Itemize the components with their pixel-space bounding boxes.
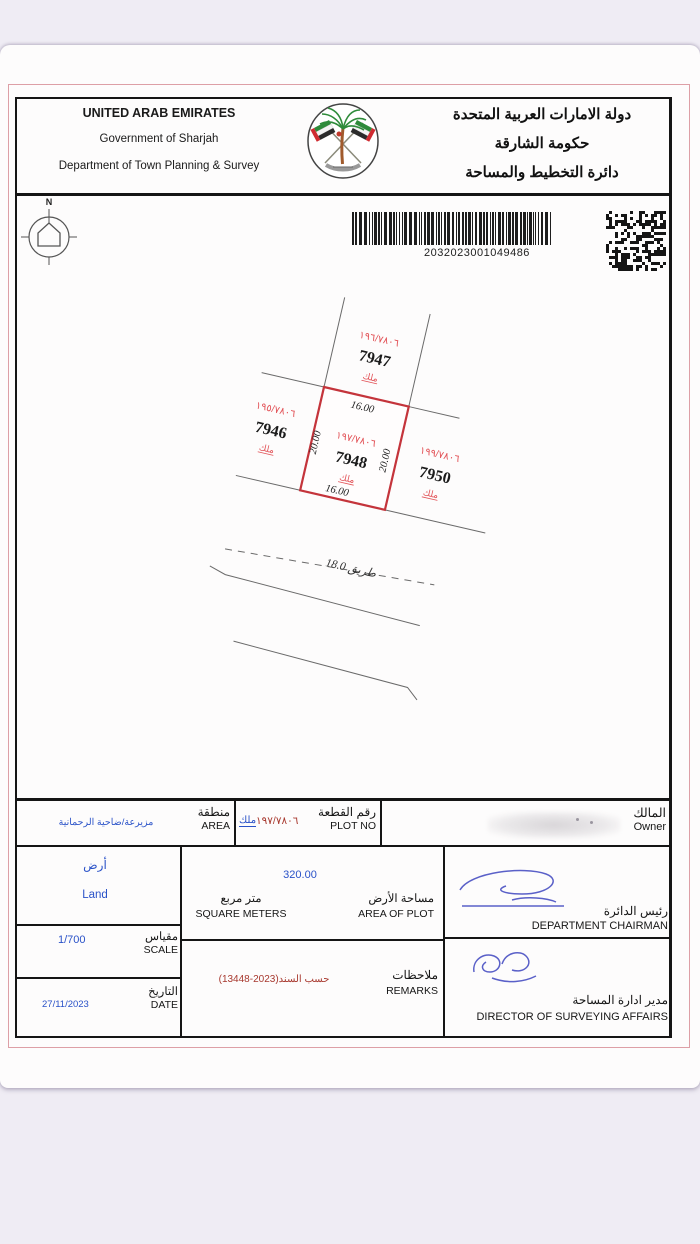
director-signature [466, 946, 552, 990]
title-country-en: UNITED ARAB EMIRATES [28, 106, 290, 120]
land-type-en: Land [40, 889, 150, 901]
square-meters-ar: متر مربع [186, 891, 296, 905]
remarks-label-en: REMARKS [358, 985, 438, 997]
director-label: مدير ادارة المساحة DIRECTOR OF SURVEYING… [440, 993, 668, 1023]
remarks-label-ar: ملاحظات [358, 968, 438, 982]
date-value: 27/11/2023 [42, 999, 89, 1010]
table-hline [15, 924, 180, 926]
plot-7950-tenure: ملك [422, 487, 439, 500]
table-top-border [15, 798, 670, 801]
datamatrix-code-icon [606, 211, 666, 271]
director-label-en: DIRECTOR OF SURVEYING AFFAIRS [440, 1011, 668, 1023]
plot-7947-tenure: ملك [362, 371, 379, 384]
barcode-block: 2032023001049486 [352, 212, 602, 259]
title-government-ar: حكومة الشارقة [418, 129, 666, 158]
barcode-icon [352, 212, 602, 245]
owner-dot [576, 818, 579, 821]
plot-7946-number: 7946 [253, 419, 288, 443]
chairman-label-en: DEPARTMENT CHAIRMAN [480, 920, 668, 932]
document-page: UNITED ARAB EMIRATES Government of Sharj… [0, 0, 700, 1244]
plot-7950-fraction: ١٩٩/٧٨٠٦ [419, 445, 461, 465]
owner-dot [590, 821, 593, 824]
area-value: مزيرعة/ضاحية الرحمانية [32, 817, 180, 828]
boundary-line [409, 314, 430, 407]
road-label: طريق 18.0 [324, 557, 377, 580]
table-hline [443, 937, 670, 939]
site-plan-drawing: 16.00 16.00 20.00 20.00 ١٩٦/٧٨٠٦ 7947 مل… [15, 288, 667, 800]
area-of-plot-value: 320.00 [255, 869, 345, 881]
area-of-plot-label-en: AREA OF PLOT [308, 908, 434, 920]
area-of-plot-label-ar: مساحة الأرض [308, 891, 434, 905]
sharjah-emblem-icon [305, 101, 381, 183]
north-compass-icon: N [16, 194, 82, 270]
owner-name-redacted [488, 812, 620, 838]
compass-north-label: N [46, 197, 53, 207]
plot-no-label-en: PLOT NO [288, 820, 376, 832]
chairman-label: رئيس الدائرة DEPARTMENT CHAIRMAN [480, 904, 668, 932]
table-hline [180, 939, 443, 941]
plot-no-label-ar: رقم القطعة [288, 805, 376, 819]
table-vline [380, 798, 382, 845]
plot-7950-number: 7950 [417, 464, 452, 488]
plot-7946-fraction: ١٩٥/٧٨٠٦ [255, 400, 297, 420]
chairman-label-ar: رئيس الدائرة [480, 904, 668, 918]
boundary-line [385, 510, 485, 533]
table-vline [180, 845, 182, 1036]
date-label: التاريخ DATE [98, 984, 178, 1011]
header-divider [15, 193, 670, 196]
boundary-line [409, 407, 460, 419]
boundary-line [324, 297, 345, 387]
plot-7947-fraction: ١٩٦/٧٨٠٦ [358, 330, 400, 350]
square-meters-label: متر مربع SQUARE METERS [186, 891, 296, 920]
header-arabic: دولة الامارات العربية المتحدة حكومة الشا… [418, 100, 666, 187]
remarks-label: ملاحظات REMARKS [358, 968, 438, 997]
scale-label-ar: مقياس [98, 929, 178, 943]
title-government-en: Government of Sharjah [28, 133, 290, 145]
plot-7946-tenure: ملك [258, 442, 275, 455]
title-department-ar: دائرة التخطيط والمساحة [418, 158, 666, 187]
scale-label: مقياس SCALE [98, 929, 178, 956]
plot-no-tenure: ملك [239, 815, 256, 827]
land-type-ar: أرض [40, 858, 150, 872]
boundary-line [262, 373, 324, 387]
plot-no-value: ١٩٧/٧٨٠٦ [256, 815, 298, 827]
boundary-line [236, 475, 300, 490]
title-department-en: Department of Town Planning & Survey [28, 160, 290, 172]
square-meters-en: SQUARE METERS [186, 908, 296, 920]
title-country-ar: دولة الامارات العربية المتحدة [418, 100, 666, 129]
scale-value: 1/700 [58, 934, 86, 946]
barcode-number: 2032023001049486 [352, 247, 602, 259]
land-type-cell: أرض Land [40, 858, 150, 901]
date-label-en: DATE [98, 999, 178, 1011]
road-edge-line [207, 566, 422, 626]
remarks-value: حسب السند(2023-13448) [198, 974, 350, 985]
plot-no-label: رقم القطعة PLOT NO [288, 805, 376, 832]
far-boundary-line [230, 641, 421, 700]
plot-7947-number: 7947 [357, 347, 392, 371]
header-english: UNITED ARAB EMIRATES Government of Sharj… [28, 106, 290, 172]
scale-label-en: SCALE [98, 944, 178, 956]
table-vline [234, 798, 236, 845]
area-of-plot-label: مساحة الأرض AREA OF PLOT [308, 891, 434, 920]
date-label-ar: التاريخ [98, 984, 178, 998]
owner-row-divider [15, 845, 670, 847]
director-label-ar: مدير ادارة المساحة [440, 993, 668, 1007]
table-hline [15, 977, 180, 979]
